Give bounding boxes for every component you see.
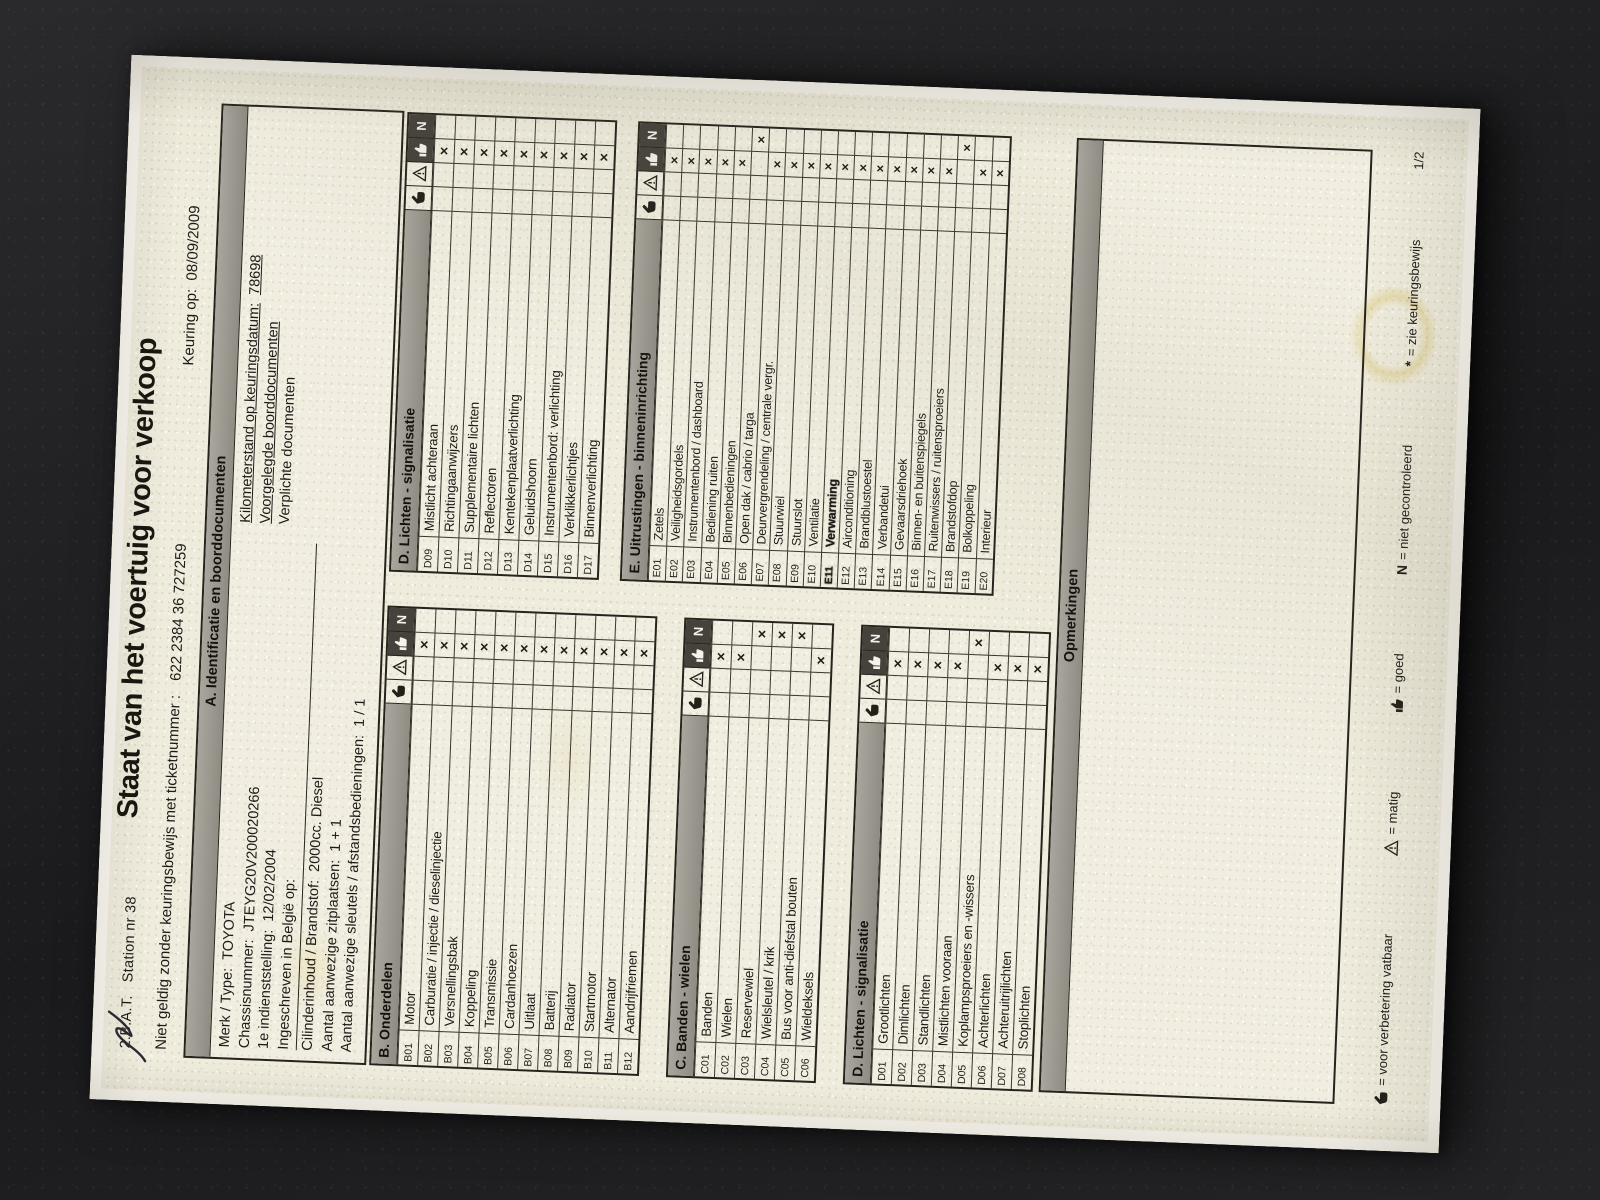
mark-cell-thumb bbox=[790, 648, 811, 673]
mark-cell-N bbox=[574, 615, 595, 640]
row-code: B09 bbox=[557, 1037, 578, 1072]
mark-cell-N bbox=[837, 131, 855, 156]
warning-triangle-icon bbox=[683, 668, 709, 693]
n-column-header: N bbox=[389, 608, 415, 633]
row-code: B11 bbox=[597, 1038, 618, 1073]
row-code: D15 bbox=[537, 542, 558, 577]
mark-cell-N bbox=[665, 124, 683, 149]
row-code: D07 bbox=[991, 1054, 1012, 1089]
row-code: D11 bbox=[457, 538, 478, 573]
row-code: D17 bbox=[577, 543, 598, 578]
mark-cell-thumb: × bbox=[819, 155, 837, 180]
legend-text: = niet gecontroleerd bbox=[1395, 444, 1415, 560]
mark-cell-thumb: × bbox=[947, 654, 968, 679]
legend: = voor verbetering vatbaar= matig= goedN… bbox=[1372, 151, 1426, 1106]
ticket-number: 622 2384 36 727259 bbox=[167, 543, 190, 681]
mark-cell-hand bbox=[592, 688, 613, 713]
row-code: B02 bbox=[417, 1031, 438, 1066]
row-code: E20 bbox=[974, 559, 993, 594]
mark-cell-hand bbox=[971, 209, 989, 234]
mark-cell-thumb: × bbox=[493, 141, 514, 166]
mark-cell-N bbox=[455, 610, 476, 635]
mark-cell-N bbox=[717, 126, 735, 151]
mark-cell-thumb: × bbox=[784, 153, 802, 178]
row-code: D01 bbox=[871, 1049, 892, 1084]
photo-background: 2.B.A.T. Station nr 38 Staat van het voe… bbox=[0, 0, 1600, 1200]
mark-cell-triangle bbox=[715, 174, 733, 199]
warning-triangle-icon bbox=[406, 162, 432, 187]
checklist-table: E. Uitrustingen - binneninrichtingNE01Ze… bbox=[620, 121, 1012, 596]
mark-cell-triangle bbox=[946, 678, 967, 703]
mark-cell-N: × bbox=[957, 136, 975, 161]
letter-n-icon: N bbox=[1394, 565, 1410, 576]
mark-cell-triangle bbox=[990, 185, 1008, 210]
mark-cell-hand bbox=[452, 682, 473, 707]
mark-cell-hand bbox=[531, 191, 552, 216]
row-code: C01 bbox=[694, 1042, 715, 1077]
row-code: C05 bbox=[774, 1045, 795, 1080]
mark-cell-hand bbox=[954, 208, 972, 233]
row-code: D10 bbox=[437, 538, 458, 573]
remarks-box: Opmerkingen bbox=[1039, 138, 1373, 1104]
mark-cell-N: × bbox=[771, 623, 792, 648]
mark-cell-hand bbox=[886, 205, 904, 230]
mark-cell-N bbox=[554, 120, 575, 145]
mark-cell-triangle bbox=[452, 164, 473, 189]
n-column-header: N bbox=[639, 123, 665, 148]
mark-cell-hand bbox=[571, 193, 592, 218]
n-column-header: N bbox=[862, 627, 888, 652]
mark-cell-thumb: × bbox=[767, 152, 785, 177]
mark-cell-triangle bbox=[433, 657, 454, 682]
triangle-icon bbox=[1383, 839, 1399, 856]
n-column-header: N bbox=[685, 620, 711, 645]
mark-cell-hand bbox=[631, 689, 652, 714]
mark-cell-hand bbox=[937, 207, 955, 232]
row-code: B07 bbox=[517, 1035, 538, 1070]
field-value: 78698 bbox=[247, 254, 265, 295]
table-onderdelen: B. OnderdelenNB01Motor×B02Carburatie / i… bbox=[369, 606, 657, 1076]
mark-cell-N bbox=[474, 117, 495, 142]
mark-cell-hand bbox=[511, 190, 532, 215]
mark-cell-triangle bbox=[680, 173, 698, 198]
mark-cell-thumb: × bbox=[887, 157, 905, 182]
row-code: E14 bbox=[871, 555, 890, 590]
mark-cell-hand bbox=[868, 205, 886, 230]
mark-cell-triangle bbox=[592, 169, 613, 194]
mark-cell-triangle bbox=[972, 185, 990, 210]
row-code: E06 bbox=[734, 549, 753, 584]
mark-cell-N bbox=[988, 632, 1009, 657]
mark-cell-triangle bbox=[413, 657, 434, 682]
mark-cell-N bbox=[434, 115, 455, 140]
row-code: D09 bbox=[417, 537, 438, 572]
row-code: E16 bbox=[905, 556, 924, 591]
mark-cell-hand bbox=[662, 196, 680, 221]
row-code: B03 bbox=[437, 1032, 458, 1067]
mark-cell-triangle bbox=[766, 176, 784, 201]
page-number: 1/2 bbox=[1410, 151, 1427, 192]
mark-cell-N bbox=[554, 614, 575, 639]
warning-triangle-icon bbox=[637, 171, 663, 196]
mark-cell-N bbox=[534, 119, 555, 144]
mark-cell-thumb: × bbox=[1007, 656, 1028, 681]
mark-cell-triangle bbox=[513, 661, 534, 686]
row-code: D05 bbox=[951, 1053, 972, 1088]
mark-cell-triangle bbox=[512, 166, 533, 191]
mark-cell-triangle bbox=[783, 177, 801, 202]
mark-cell-thumb: × bbox=[716, 150, 734, 175]
mark-cell-hand bbox=[612, 689, 633, 714]
mark-cell-N bbox=[475, 611, 496, 636]
table-banden-wielen: C. Banden - wielenNC01Banden×C02Wielen×C… bbox=[666, 617, 834, 1083]
row-code: E07 bbox=[751, 550, 770, 585]
mark-cell-hand bbox=[697, 198, 715, 223]
mark-cell-triangle bbox=[887, 181, 905, 206]
row-code: C02 bbox=[714, 1043, 735, 1078]
asterisk-icon: * bbox=[1402, 361, 1418, 367]
mark-cell-thumb bbox=[750, 152, 768, 177]
mark-cell-N bbox=[574, 121, 595, 146]
mark-cell-hand bbox=[851, 204, 869, 229]
legend-item: = voor verbetering vatbaar bbox=[1373, 934, 1395, 1107]
mark-cell-triangle bbox=[904, 182, 922, 207]
section-identification: A. Identificatie en boorddocumenten Merk… bbox=[183, 103, 404, 1065]
table-uitrustingen: E. Uitrustingen - binneninrichtingNE01Ze… bbox=[620, 121, 1012, 596]
mark-cell-N bbox=[768, 128, 786, 153]
table-lichten-1: D. Lichten - signalisatieND01Grootlichte… bbox=[843, 625, 1051, 1092]
mark-cell-N bbox=[514, 118, 535, 143]
mark-cell-N bbox=[906, 134, 924, 159]
mark-cell-triangle bbox=[769, 671, 790, 696]
hand-icon bbox=[1373, 1091, 1389, 1107]
mark-cell-N bbox=[811, 625, 832, 650]
mark-cell-hand bbox=[748, 200, 766, 225]
mark-cell-N bbox=[854, 132, 872, 157]
mark-cell-thumb: × bbox=[613, 641, 634, 666]
row-code: E11 bbox=[820, 553, 839, 588]
mark-cell-triangle bbox=[592, 664, 613, 689]
mark-cell-triangle bbox=[432, 163, 453, 188]
mark-cell-N bbox=[711, 621, 732, 646]
row-code: D06 bbox=[971, 1053, 992, 1088]
row-code: B05 bbox=[477, 1034, 498, 1069]
mark-cell-N bbox=[785, 129, 803, 154]
mark-cell-thumb: × bbox=[434, 633, 455, 658]
ticket-label: Niet geldig zonder keuringsbewijs met ti… bbox=[153, 695, 184, 1051]
mark-cell-thumb: × bbox=[533, 637, 554, 662]
mark-cell-N bbox=[991, 137, 1009, 162]
mark-cell-thumb: × bbox=[414, 633, 435, 658]
row-code: E08 bbox=[768, 551, 787, 586]
row-code: B10 bbox=[577, 1038, 598, 1073]
row-code: E09 bbox=[785, 552, 804, 587]
mark-cell-hand bbox=[551, 192, 572, 217]
mark-cell-hand bbox=[552, 686, 573, 711]
mark-cell-hand bbox=[965, 703, 986, 728]
mark-cell-hand bbox=[985, 704, 1006, 729]
field-label: 1e indienststelling: bbox=[256, 929, 277, 1049]
row-code: E18 bbox=[940, 558, 959, 593]
mark-cell-triangle bbox=[926, 677, 947, 702]
mark-cell-N bbox=[928, 629, 949, 654]
mark-cell-thumb: × bbox=[633, 641, 654, 666]
mark-cell-hand bbox=[679, 197, 697, 222]
row-code: E13 bbox=[854, 554, 873, 589]
mark-cell-triangle bbox=[572, 169, 593, 194]
mark-cell-N bbox=[888, 628, 909, 653]
warning-triangle-icon bbox=[387, 656, 413, 681]
mark-cell-triangle bbox=[749, 176, 767, 201]
mark-cell-triangle bbox=[493, 660, 514, 685]
mark-cell-hand bbox=[1005, 704, 1026, 729]
legend-item: *= zie keuringsbewijs bbox=[1402, 239, 1423, 367]
mark-cell-hand bbox=[945, 702, 966, 727]
mark-cell-thumb: × bbox=[973, 161, 991, 186]
mark-cell-triangle bbox=[869, 181, 887, 206]
row-code: D12 bbox=[477, 539, 498, 574]
mark-cell-N bbox=[534, 613, 555, 638]
mark-cell-thumb: × bbox=[733, 151, 751, 176]
mark-cell-hand bbox=[451, 188, 472, 213]
mark-cell-triangle bbox=[552, 168, 573, 193]
hand-icon bbox=[636, 195, 662, 220]
mark-cell-thumb: × bbox=[553, 638, 574, 663]
mark-cell-thumb: × bbox=[473, 141, 494, 166]
checklist-table: D. Lichten - signalisatieND09Mistlicht a… bbox=[389, 112, 617, 580]
mark-cell-N bbox=[594, 616, 615, 641]
mark-cell-hand bbox=[783, 201, 801, 226]
field-value: 1 / 1 bbox=[352, 698, 369, 727]
mark-cell-hand bbox=[512, 685, 533, 710]
inspection-date: Keuring op: 08/09/2009 bbox=[180, 205, 203, 366]
mark-cell-triangle bbox=[663, 172, 681, 197]
mark-cell-hand bbox=[1025, 705, 1046, 730]
thumbs-up-icon bbox=[861, 651, 887, 676]
mark-cell-N bbox=[923, 135, 941, 160]
field-value: 12/02/2004 bbox=[261, 849, 280, 922]
mark-cell-thumb bbox=[770, 647, 791, 672]
mark-cell-triangle bbox=[818, 179, 836, 204]
mark-cell-hand bbox=[491, 189, 512, 214]
checklist-table: C. Banden - wielenNC01Banden×C02Wielen×C… bbox=[666, 617, 834, 1083]
row-code: D14 bbox=[517, 541, 538, 576]
mark-cell-triangle bbox=[955, 184, 973, 209]
row-code: B12 bbox=[617, 1039, 638, 1074]
mark-cell-triangle bbox=[612, 665, 633, 690]
mark-cell-thumb: × bbox=[681, 149, 699, 174]
mark-cell-N: × bbox=[791, 624, 812, 649]
document-fields: Kilometerstand op keuringsdatum:78698Voo… bbox=[237, 117, 395, 528]
mark-cell-triangle bbox=[709, 669, 730, 694]
mark-cell-N bbox=[514, 613, 535, 638]
mark-cell-hand bbox=[431, 187, 452, 212]
mark-cell-hand bbox=[492, 684, 513, 709]
field-label: Chassisnummer: bbox=[236, 939, 256, 1048]
mark-cell-triangle bbox=[532, 167, 553, 192]
row-code: E12 bbox=[837, 554, 856, 589]
thumbs-up-icon bbox=[388, 632, 414, 657]
mark-cell-hand bbox=[800, 202, 818, 227]
row-code: B04 bbox=[457, 1033, 478, 1068]
mark-cell-N bbox=[803, 130, 821, 155]
mark-cell-hand bbox=[817, 202, 835, 227]
mark-cell-thumb: × bbox=[927, 653, 948, 678]
mark-cell-N bbox=[948, 630, 969, 655]
mark-cell-thumb: × bbox=[573, 639, 594, 664]
field-value: TOYOTA bbox=[220, 901, 238, 960]
legend-text: = voor verbetering vatbaar bbox=[1374, 934, 1395, 1087]
inspection-form-paper: 2.B.A.T. Station nr 38 Staat van het voe… bbox=[90, 55, 1481, 1153]
mark-cell-N: × bbox=[751, 622, 772, 647]
mark-cell-thumb: × bbox=[870, 157, 888, 182]
mark-cell-hand bbox=[768, 695, 789, 720]
row-code: E01 bbox=[648, 546, 667, 581]
checklist-columns: B. OnderdelenNB01Motor×B02Carburatie / i… bbox=[369, 111, 1071, 1092]
mark-cell-N bbox=[888, 133, 906, 158]
mark-cell-hand bbox=[728, 693, 749, 718]
table-lichten-2: D. Lichten - signalisatieND09Mistlicht a… bbox=[389, 112, 617, 580]
mark-cell-hand bbox=[903, 206, 921, 231]
mark-cell-thumb: × bbox=[887, 652, 908, 677]
mark-cell-triangle bbox=[886, 676, 907, 701]
mark-cell-triangle bbox=[533, 661, 554, 686]
mark-cell-triangle bbox=[852, 180, 870, 205]
mark-cell-triangle bbox=[749, 670, 770, 695]
mark-cell-thumb: × bbox=[699, 150, 717, 175]
mark-cell-thumb: × bbox=[573, 145, 594, 170]
mark-cell-thumb: × bbox=[922, 159, 940, 184]
mark-cell-thumb: × bbox=[905, 158, 923, 183]
mark-cell-N bbox=[731, 621, 752, 646]
row-code: C04 bbox=[754, 1045, 775, 1080]
remarks-empty-area bbox=[1066, 141, 1371, 1102]
mark-cell-hand bbox=[708, 693, 729, 718]
legend-text: = zie keuringsbewijs bbox=[1403, 239, 1423, 356]
row-code: B01 bbox=[397, 1030, 418, 1065]
mark-cell-thumb: × bbox=[710, 645, 731, 670]
mark-cell-hand bbox=[925, 701, 946, 726]
mark-cell-N: × bbox=[751, 128, 769, 153]
mark-cell-triangle bbox=[492, 165, 513, 190]
identification-fields: Merk / Type:TOYOTAChassisnummer:JTEYG20V… bbox=[216, 522, 315, 1050]
mark-cell-hand bbox=[765, 200, 783, 225]
hand-icon bbox=[386, 680, 412, 705]
legend-item: = matig bbox=[1383, 791, 1401, 856]
mark-cell-N bbox=[594, 121, 615, 146]
mark-cell-thumb: × bbox=[474, 635, 495, 660]
mark-cell-N bbox=[634, 618, 655, 643]
mark-cell-triangle bbox=[572, 663, 593, 688]
row-code: E05 bbox=[717, 549, 736, 584]
row-code: B08 bbox=[537, 1036, 558, 1071]
mark-cell-N bbox=[1008, 633, 1029, 658]
mark-cell-thumb: × bbox=[454, 634, 475, 659]
legend-text: = matig bbox=[1384, 791, 1401, 835]
mark-cell-N bbox=[454, 116, 475, 141]
row-code: B06 bbox=[497, 1034, 518, 1069]
mark-cell-N: × bbox=[968, 631, 989, 656]
hand-icon bbox=[406, 186, 432, 211]
mark-cell-thumb: × bbox=[514, 637, 535, 662]
mark-cell-thumb: × bbox=[664, 148, 682, 173]
mark-cell-triangle bbox=[732, 175, 750, 200]
row-code: E02 bbox=[665, 547, 684, 582]
checklist-table: D. Lichten - signalisatieND01Grootlichte… bbox=[843, 625, 1051, 1092]
mark-cell-triangle bbox=[966, 679, 987, 704]
row-code: E04 bbox=[699, 548, 718, 583]
mark-cell-thumb: × bbox=[553, 144, 574, 169]
mark-cell-triangle bbox=[632, 665, 653, 690]
mark-cell-thumb: × bbox=[939, 159, 957, 184]
row-code: D13 bbox=[497, 540, 518, 575]
legend-item: N= niet gecontroleerd bbox=[1394, 444, 1415, 575]
mark-cell-triangle bbox=[986, 680, 1007, 705]
row-code: D16 bbox=[557, 542, 578, 577]
mark-cell-N bbox=[974, 137, 992, 162]
row-code: D03 bbox=[911, 1051, 932, 1086]
thumb-icon bbox=[1389, 698, 1405, 714]
mark-cell-thumb: × bbox=[433, 139, 454, 164]
mark-cell-thumb: × bbox=[593, 640, 614, 665]
mark-cell-triangle bbox=[809, 673, 830, 698]
field-label: Verplichte documenten bbox=[277, 377, 299, 525]
row-code: C03 bbox=[734, 1044, 755, 1079]
mark-cell-hand bbox=[788, 696, 809, 721]
n-column-header: N bbox=[408, 114, 434, 139]
row-code: E03 bbox=[682, 547, 701, 582]
mark-cell-N bbox=[940, 135, 958, 160]
mark-cell-thumb: × bbox=[453, 140, 474, 165]
row-code: D02 bbox=[891, 1050, 912, 1085]
legend-item: = goed bbox=[1389, 653, 1406, 714]
mark-cell-N bbox=[820, 131, 838, 156]
mark-cell-hand bbox=[885, 700, 906, 725]
row-code: E17 bbox=[923, 557, 942, 592]
mark-cell-triangle bbox=[801, 178, 819, 203]
mark-cell-N bbox=[908, 629, 929, 654]
mark-cell-thumb: × bbox=[836, 155, 854, 180]
mark-cell-N bbox=[435, 609, 456, 634]
mark-cell-N bbox=[1028, 633, 1049, 658]
mark-cell-hand bbox=[532, 685, 553, 710]
mark-cell-triangle bbox=[835, 179, 853, 204]
legend-items: = voor verbetering vatbaar= matig= goedN… bbox=[1372, 191, 1425, 1106]
mark-cell-N bbox=[700, 126, 718, 151]
field-value: 1 + 1 bbox=[327, 819, 344, 852]
warning-triangle-icon bbox=[860, 675, 886, 700]
mark-cell-thumb: × bbox=[730, 645, 751, 670]
mark-cell-hand bbox=[572, 687, 593, 712]
mark-cell-thumb: × bbox=[494, 636, 515, 661]
mark-cell-triangle bbox=[906, 676, 927, 701]
mark-cell-hand bbox=[731, 199, 749, 224]
mark-cell-hand bbox=[714, 198, 732, 223]
row-code: C06 bbox=[794, 1046, 815, 1081]
mark-cell-N bbox=[734, 127, 752, 152]
mark-cell-N bbox=[614, 617, 635, 642]
thumbs-up-icon bbox=[638, 147, 664, 172]
thumbs-up-icon bbox=[407, 138, 433, 163]
row-code: D08 bbox=[1011, 1055, 1032, 1090]
mark-cell-triangle bbox=[553, 662, 574, 687]
mark-cell-N bbox=[494, 117, 515, 142]
field-value: 2000cc. Diesel bbox=[307, 777, 327, 873]
row-code: D04 bbox=[931, 1052, 952, 1087]
mark-cell-triangle bbox=[789, 672, 810, 697]
mark-cell-triangle bbox=[729, 669, 750, 694]
mark-cell-thumb: × bbox=[533, 143, 554, 168]
